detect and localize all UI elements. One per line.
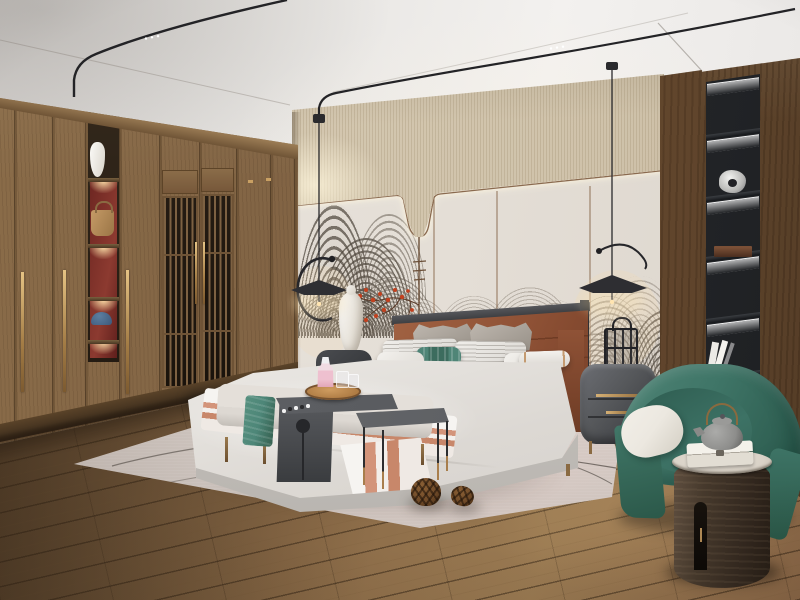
drum-table-group xyxy=(0,0,800,600)
gift-box-clasp xyxy=(716,450,724,456)
bedroom-scene xyxy=(0,0,800,600)
teapot xyxy=(701,422,743,450)
teapot-knob xyxy=(720,414,725,419)
drum-side-table xyxy=(674,460,770,588)
drum-notch-brass xyxy=(700,528,702,542)
